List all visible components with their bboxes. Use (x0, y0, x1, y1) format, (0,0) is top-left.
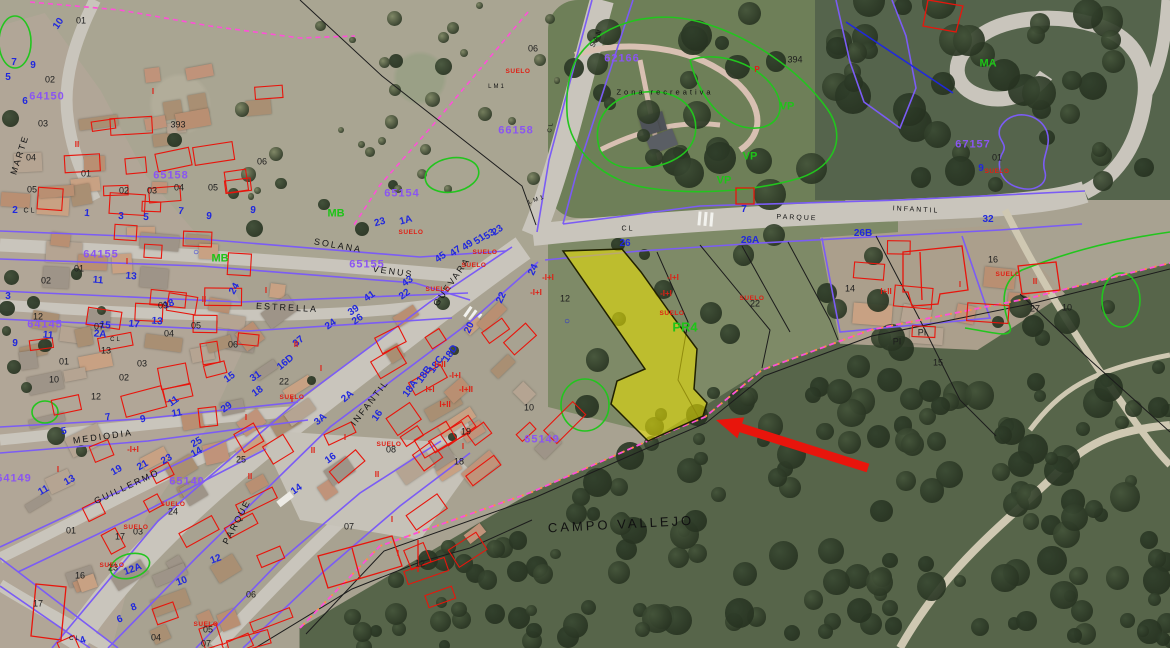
suelo-label: SUELO (161, 502, 186, 509)
parcel-number-label: 05 (27, 186, 37, 195)
height-mark-label: -I+I (449, 372, 461, 380)
portal-number-label: 10 (52, 17, 67, 32)
suelo-label: SUELO (740, 296, 765, 303)
parcel-number-label: 12 (560, 295, 570, 304)
parcel-number-label: 02 (119, 374, 129, 383)
height-mark-label: I (291, 396, 293, 404)
suelo-label: SUELO (660, 311, 685, 318)
parcel-number-label: 04 (26, 154, 36, 163)
height-mark-label: -I+I (542, 274, 554, 282)
portal-number-label: 8 (130, 602, 139, 613)
parcel-number-label: 24 (168, 508, 178, 517)
height-mark-label: I (344, 434, 346, 442)
parcel-number-label: 01 (81, 170, 91, 179)
portal-number-label: 29 (220, 401, 235, 416)
suelo-label: SUELO (194, 622, 219, 629)
portal-number-label: 11 (171, 408, 183, 420)
parcel-number-label: 25 (236, 456, 246, 465)
portal-number-label: 13 (125, 272, 137, 283)
parcel-number-label: 03 (147, 187, 157, 196)
portal-number-label: 19 (110, 464, 125, 478)
portal-number-label: 18 (251, 385, 266, 400)
block-code-label: 66158 (498, 126, 534, 137)
parcel-number-label: 02 (119, 187, 129, 196)
portal-number-label: 24 (324, 318, 339, 333)
parcel-number-label: 14 (845, 285, 855, 294)
portal-number-label: 16D (276, 353, 296, 372)
height-mark-label: I (57, 466, 59, 474)
parcel-number-label: 06 (246, 591, 256, 600)
parcel-number-label: 15 (933, 359, 943, 368)
street-name-label: CL (547, 121, 555, 134)
parcel-number-label: 09 (158, 302, 168, 311)
height-mark-label: I (959, 281, 961, 289)
street-name-label: CL (24, 208, 37, 215)
portal-number-label: 6 (116, 614, 125, 625)
parcel-number-label: 05 (208, 184, 218, 193)
portal-number-label: 26B (854, 229, 872, 239)
block-code-label: 65155 (349, 260, 385, 271)
portal-number-label: 22 (398, 288, 413, 303)
portal-number-label: 22 (495, 291, 509, 305)
portal-number-label: 26 (619, 239, 630, 249)
portal-number-label: 26A (741, 236, 759, 246)
zone-code-label: VP (743, 152, 758, 163)
suelo-label: SUELO (506, 69, 531, 76)
parcel-number-label: 07 (94, 323, 104, 332)
parcel-number-label: 12 (33, 313, 43, 322)
street-name-label: LM1 (528, 194, 547, 206)
parcel-number-label: 04 (151, 634, 161, 643)
height-mark-label: I (397, 550, 399, 558)
parcel-number-label: 12 (415, 560, 425, 569)
suelo-label: SUELO (996, 272, 1021, 279)
portal-number-label: 10 (175, 575, 189, 588)
block-code-label: 64150 (29, 92, 65, 103)
parcel-number-label: 17 (33, 600, 43, 609)
portal-number-label: 5 (143, 213, 149, 223)
portal-number-label: 17 (128, 320, 140, 331)
parcel-number-label: 10 (49, 376, 59, 385)
parcel-number-label: 394 (787, 56, 802, 65)
portal-number-label: 7 (178, 207, 184, 217)
parcel-number-label: 13 (101, 347, 111, 356)
parcel-number-label: 05 (191, 322, 201, 331)
block-code-label: 64155 (83, 250, 119, 261)
parcel-number-label: 03 (38, 120, 48, 129)
height-mark-label: -I+I (530, 289, 542, 297)
portal-number-label: 13 (151, 317, 163, 328)
height-mark-label: II (1033, 278, 1037, 286)
map-symbol: ○ (193, 248, 199, 258)
block-code-label: 65154 (384, 189, 420, 200)
parcel-number-label: 18 (454, 458, 464, 467)
portal-number-label: 14 (190, 446, 205, 460)
height-mark-label: I+II (439, 401, 450, 409)
parcel-number-label: 16 (75, 572, 85, 581)
area-name-label: Zona recreativa (616, 88, 713, 96)
labels-layer: MARTEVENUSESTRELLASOLANAMEDIODIAGUILLERM… (0, 0, 1170, 648)
suelo-label: SUELO (124, 525, 149, 532)
height-mark-label: -I+I (667, 274, 679, 282)
parcel-number-label: 01 (992, 154, 1002, 163)
parcel-number-label: 19 (461, 428, 471, 437)
parcel-number-label: 17 (115, 533, 125, 542)
portal-number-label: 3 (5, 292, 11, 302)
street-name-label: CL (110, 337, 122, 343)
block-code-label: 65140 (169, 477, 205, 488)
portal-number-label: 7 (104, 413, 111, 424)
parcel-number-label: 06 (257, 158, 267, 167)
portal-number-label: 6 (22, 97, 28, 107)
height-mark-label: I (245, 414, 247, 422)
portal-number-label: 9 (978, 164, 984, 174)
portal-number-label: 11 (42, 331, 53, 342)
portal-number-label: 12 (209, 553, 223, 566)
zone-code-label: MA (979, 59, 996, 70)
height-mark-label: I (462, 443, 464, 451)
parcel-number-label: 06 (228, 341, 238, 350)
portal-number-label: 45 (434, 251, 449, 266)
area-name-label: CAMPO VALLEJO (548, 514, 695, 535)
parcel-number-label: 06 (528, 45, 538, 54)
parcel-number-label: PI (893, 338, 902, 347)
street-name-label: GUILLERMO (93, 468, 161, 506)
height-mark-label: -I+I (660, 290, 672, 298)
height-mark-label: I+II (880, 288, 891, 296)
portal-number-label: 11 (92, 276, 103, 287)
parcel-number-label: 10 (524, 404, 534, 413)
portal-number-label: 2 (12, 206, 18, 216)
street-name-label: ESTRELLA (256, 302, 318, 314)
zone-code-label: MB (327, 209, 344, 220)
parcel-number-label: 03 (137, 360, 147, 369)
suelo-label: SUELO (985, 169, 1010, 176)
parcel-number-label: 02 (45, 76, 55, 85)
portal-number-label: 41 (363, 290, 378, 305)
portal-number-label: 16 (371, 409, 386, 424)
portal-number-label: 23 (160, 453, 175, 467)
parcel-number-label: PI (918, 329, 927, 338)
parcel-number-label: 07 (344, 523, 354, 532)
block-code-label: 65158 (153, 171, 189, 182)
suelo-label: SUELO (462, 263, 487, 270)
street-name-label: CL (622, 226, 635, 233)
suelo-label: SUELO (100, 563, 125, 570)
portal-number-label: 9 (30, 61, 36, 71)
parcel-number-label: 12 (91, 393, 101, 402)
parcel-number-label: 10 (1062, 304, 1072, 313)
height-mark-label: I (126, 258, 128, 266)
height-mark-label: I+II (434, 361, 445, 369)
block-code-label: 67157 (955, 140, 991, 151)
portal-number-label: 18A (402, 379, 421, 400)
street-name-label: PARQUE (776, 214, 817, 222)
portal-number-label: 32 (982, 215, 993, 225)
suelo-label: SUELO (377, 442, 402, 449)
portal-number-label: 3 (118, 212, 124, 222)
portal-number-label: 9 (250, 206, 256, 216)
height-mark-label: II (202, 296, 206, 304)
zone-code-label: VP (780, 102, 795, 113)
height-mark-label: I (320, 365, 322, 373)
street-name-label: LM1 (488, 84, 506, 90)
height-mark-label: II (75, 141, 79, 149)
height-mark-label: II (375, 471, 379, 479)
height-mark-label: -I+II (459, 386, 473, 394)
portal-number-label: 26 (351, 313, 366, 328)
map-symbol: ○ (564, 317, 570, 327)
height-mark-label: II (311, 447, 315, 455)
portal-number-label: 24 (228, 282, 242, 297)
street-name-label: INFANTIL (349, 378, 390, 427)
parcel-number-label: 01 (59, 358, 69, 367)
portal-number-label: 7 (741, 205, 747, 215)
parcel-number-label: 01 (66, 527, 76, 536)
parcel-number-label: 07 (201, 640, 211, 648)
parcel-number-label: 16 (988, 256, 998, 265)
portal-number-label: 43 (401, 275, 416, 290)
height-mark-label: I+I (425, 386, 434, 394)
cadastral-map: MARTEVENUSESTRELLASOLANAMEDIODIAGUILLERM… (0, 0, 1170, 648)
portal-number-label: 31 (249, 370, 264, 385)
portal-number-label: 20 (463, 321, 477, 335)
portal-number-label: 16 (324, 452, 339, 467)
suelo-label: SUELO (399, 230, 424, 237)
portal-number-label: 1A (399, 215, 414, 228)
portal-number-label: 9 (139, 415, 146, 426)
block-code-label: 65149 (524, 435, 560, 446)
portal-number-label: 4 (79, 635, 88, 646)
portal-number-label: 12A (123, 562, 144, 578)
portal-number-label: 23 (373, 217, 386, 230)
parcel-number-label: 27 (1030, 305, 1040, 314)
height-mark-label: I (152, 88, 154, 96)
height-mark-label: II (248, 473, 252, 481)
street-name-label: SOLANA (313, 237, 362, 254)
parcel-number-label: 393 (170, 121, 185, 130)
portal-number-label: 2A (340, 389, 356, 405)
street-name-label: SAN (590, 27, 605, 48)
parcel-number-label: 22 (279, 378, 289, 387)
height-mark-label: -I+I (127, 446, 139, 454)
portal-number-label: 5 (60, 427, 67, 438)
block-code-label: 62166 (604, 54, 640, 65)
suelo-label: SUELO (426, 287, 451, 294)
parcel-number-label: 01 (76, 17, 86, 26)
portal-number-label: 15 (223, 371, 238, 386)
street-name-label: INFANTIL (892, 205, 939, 214)
suelo-label: SUELO (473, 250, 498, 257)
portal-number-label: 7 (11, 58, 17, 68)
portal-number-label: 13 (63, 474, 78, 488)
street-name-label: PARQUE (221, 498, 252, 546)
height-mark-label: I (391, 516, 393, 524)
height-mark-label: I (265, 287, 267, 295)
portal-number-label: 5 (5, 73, 11, 83)
parcel-number-label: 04 (174, 184, 184, 193)
portal-number-label: 1 (84, 209, 90, 219)
height-mark-label: P (754, 66, 759, 74)
zone-code-label: MB (211, 254, 228, 265)
parcel-number-label: 01 (74, 265, 84, 274)
block-code-label: 64149 (0, 474, 32, 485)
portal-number-label: 14 (290, 483, 305, 498)
parcel-number-label: 04 (164, 330, 174, 339)
zone-code-label: VP (717, 176, 732, 187)
street-name-label: MEDIODIA (72, 428, 133, 445)
portal-number-label: 24 (527, 263, 541, 277)
portal-number-label: 9 (206, 212, 212, 222)
portal-number-label: 11 (37, 484, 51, 498)
height-mark-label: II (294, 341, 298, 349)
parcel-number-label: 02 (41, 277, 51, 286)
zone-code-label: PR4 (672, 321, 697, 334)
portal-number-label: 9 (12, 339, 18, 349)
portal-number-label: 3A (313, 412, 329, 428)
